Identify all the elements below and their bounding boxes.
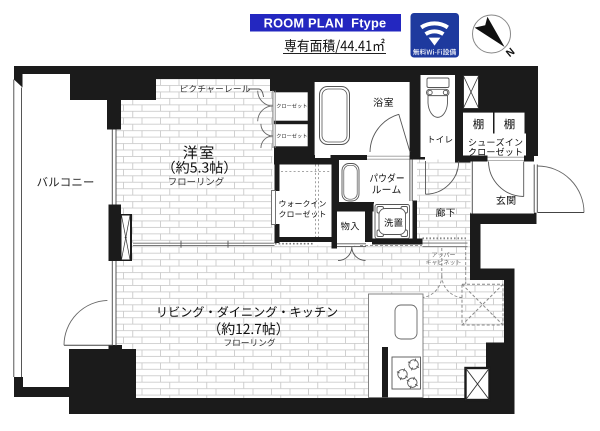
svg-text:N: N — [504, 46, 518, 60]
svg-text:ROOM PLAN Ftype: ROOM PLAN Ftype — [264, 16, 387, 31]
